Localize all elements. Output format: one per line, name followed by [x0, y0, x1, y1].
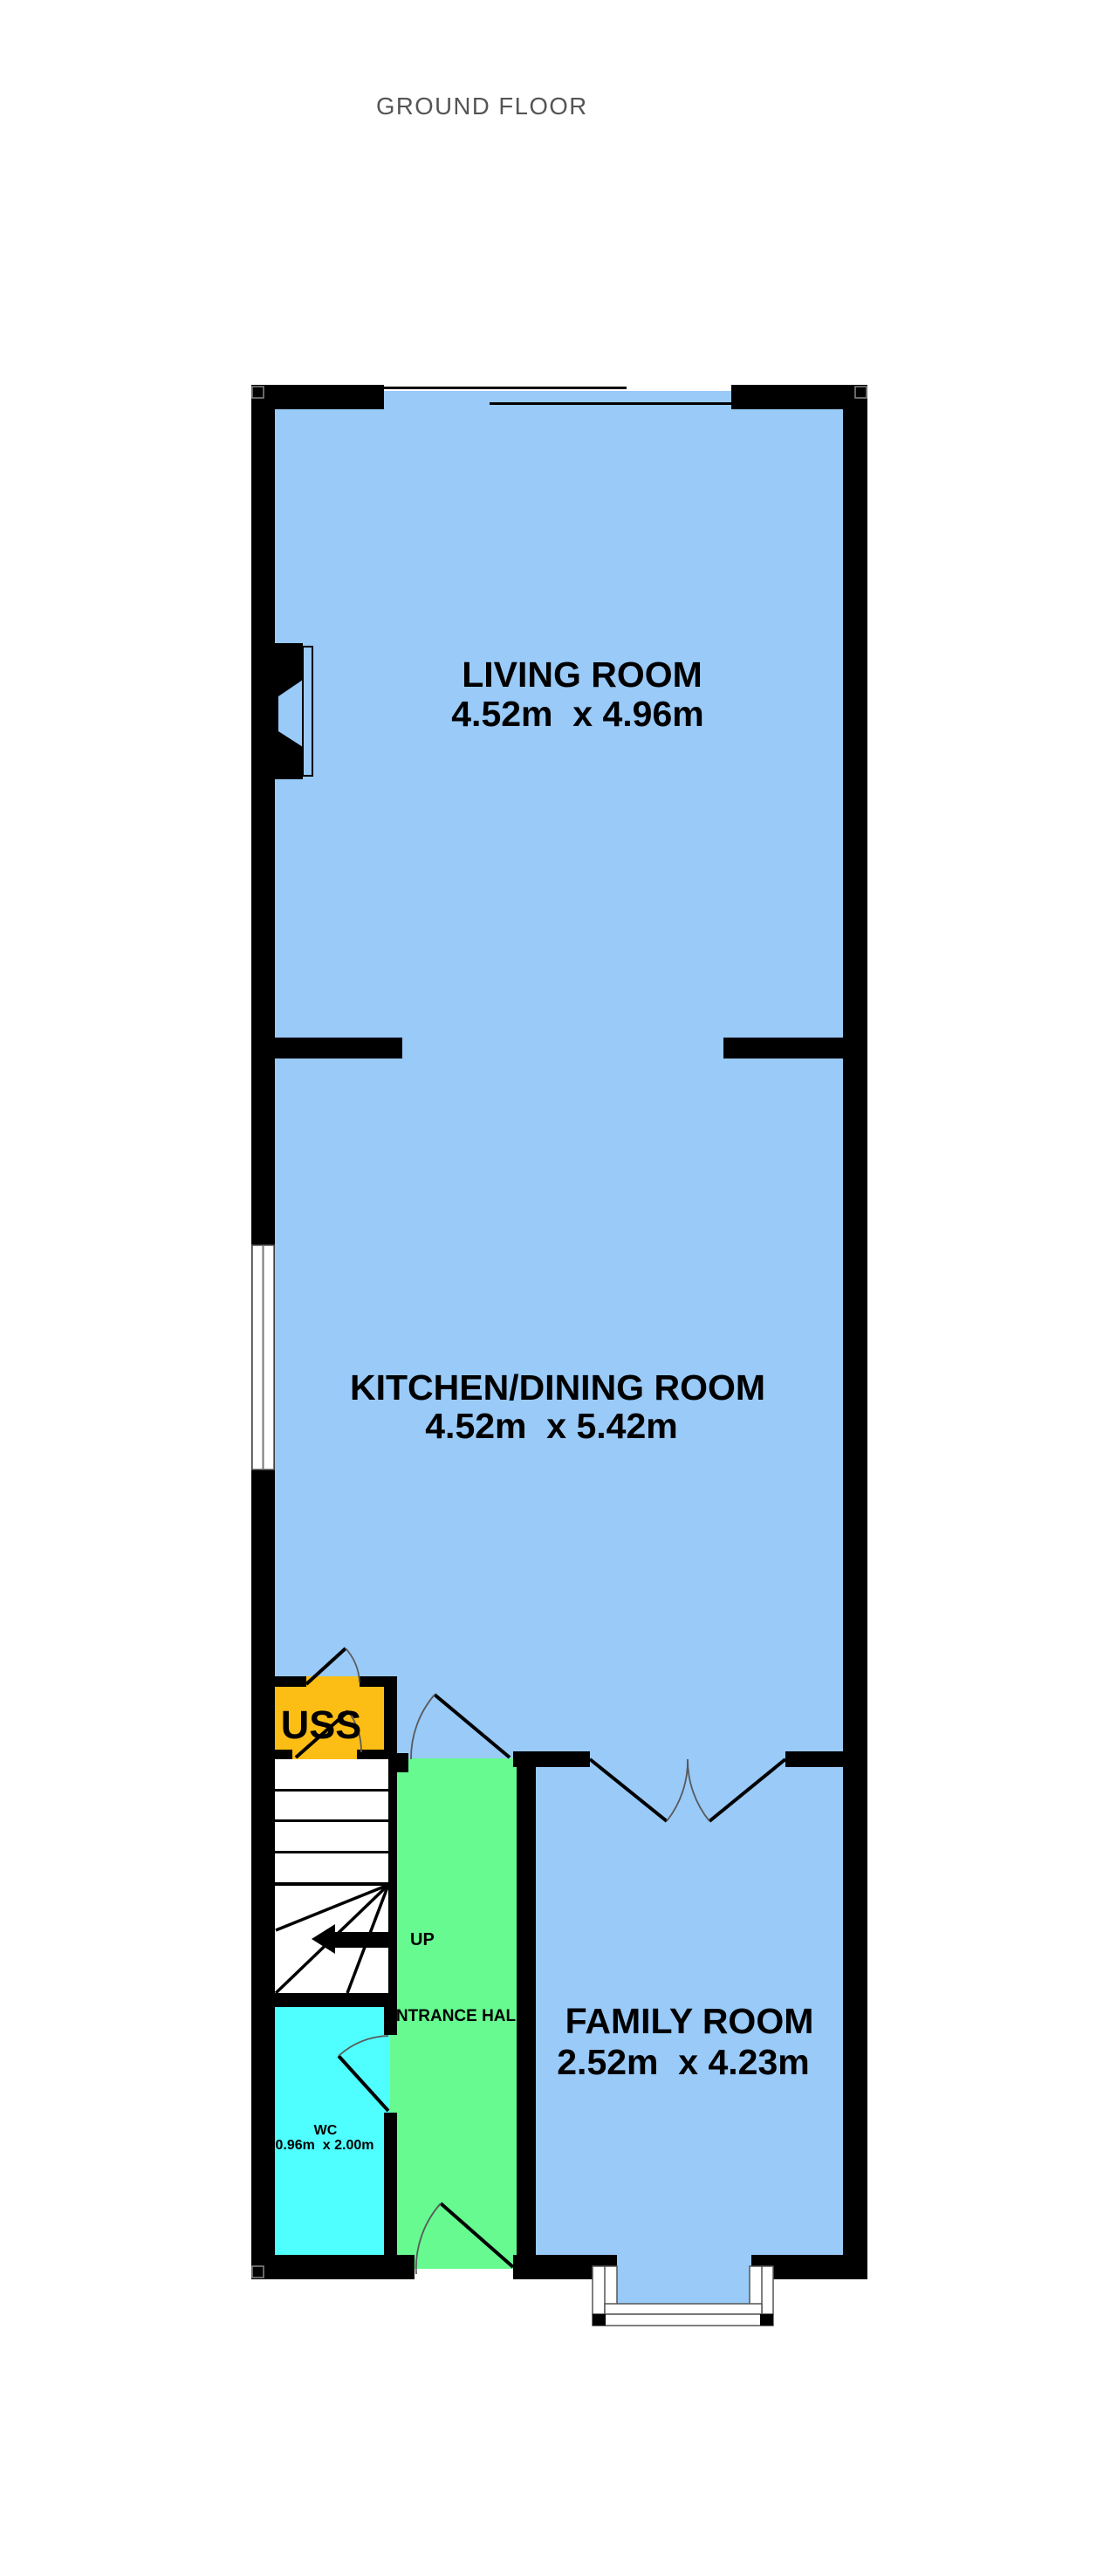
svg-text:UP: UP — [410, 1930, 435, 1949]
svg-text:LIVING ROOM: LIVING ROOM — [462, 654, 702, 695]
svg-text:4.52m x 4.96m: 4.52m x 4.96m — [451, 694, 703, 734]
svg-text:WC: WC — [314, 2123, 338, 2138]
svg-text:ENTRANCE HALL: ENTRANCE HALL — [385, 2007, 526, 2025]
svg-text:KITCHEN/DINING ROOM: KITCHEN/DINING ROOM — [350, 1367, 765, 1408]
svg-text:FAMILY ROOM: FAMILY ROOM — [565, 2001, 814, 2041]
svg-text:USS: USS — [281, 1702, 362, 1747]
svg-text:4.52m x 5.42m: 4.52m x 5.42m — [425, 1406, 677, 1446]
svg-text:GROUND FLOOR: GROUND FLOOR — [376, 92, 588, 120]
svg-text:2.52m x 4.23m: 2.52m x 4.23m — [557, 2042, 809, 2082]
svg-text:0.96m x 2.00m: 0.96m x 2.00m — [276, 2138, 374, 2153]
